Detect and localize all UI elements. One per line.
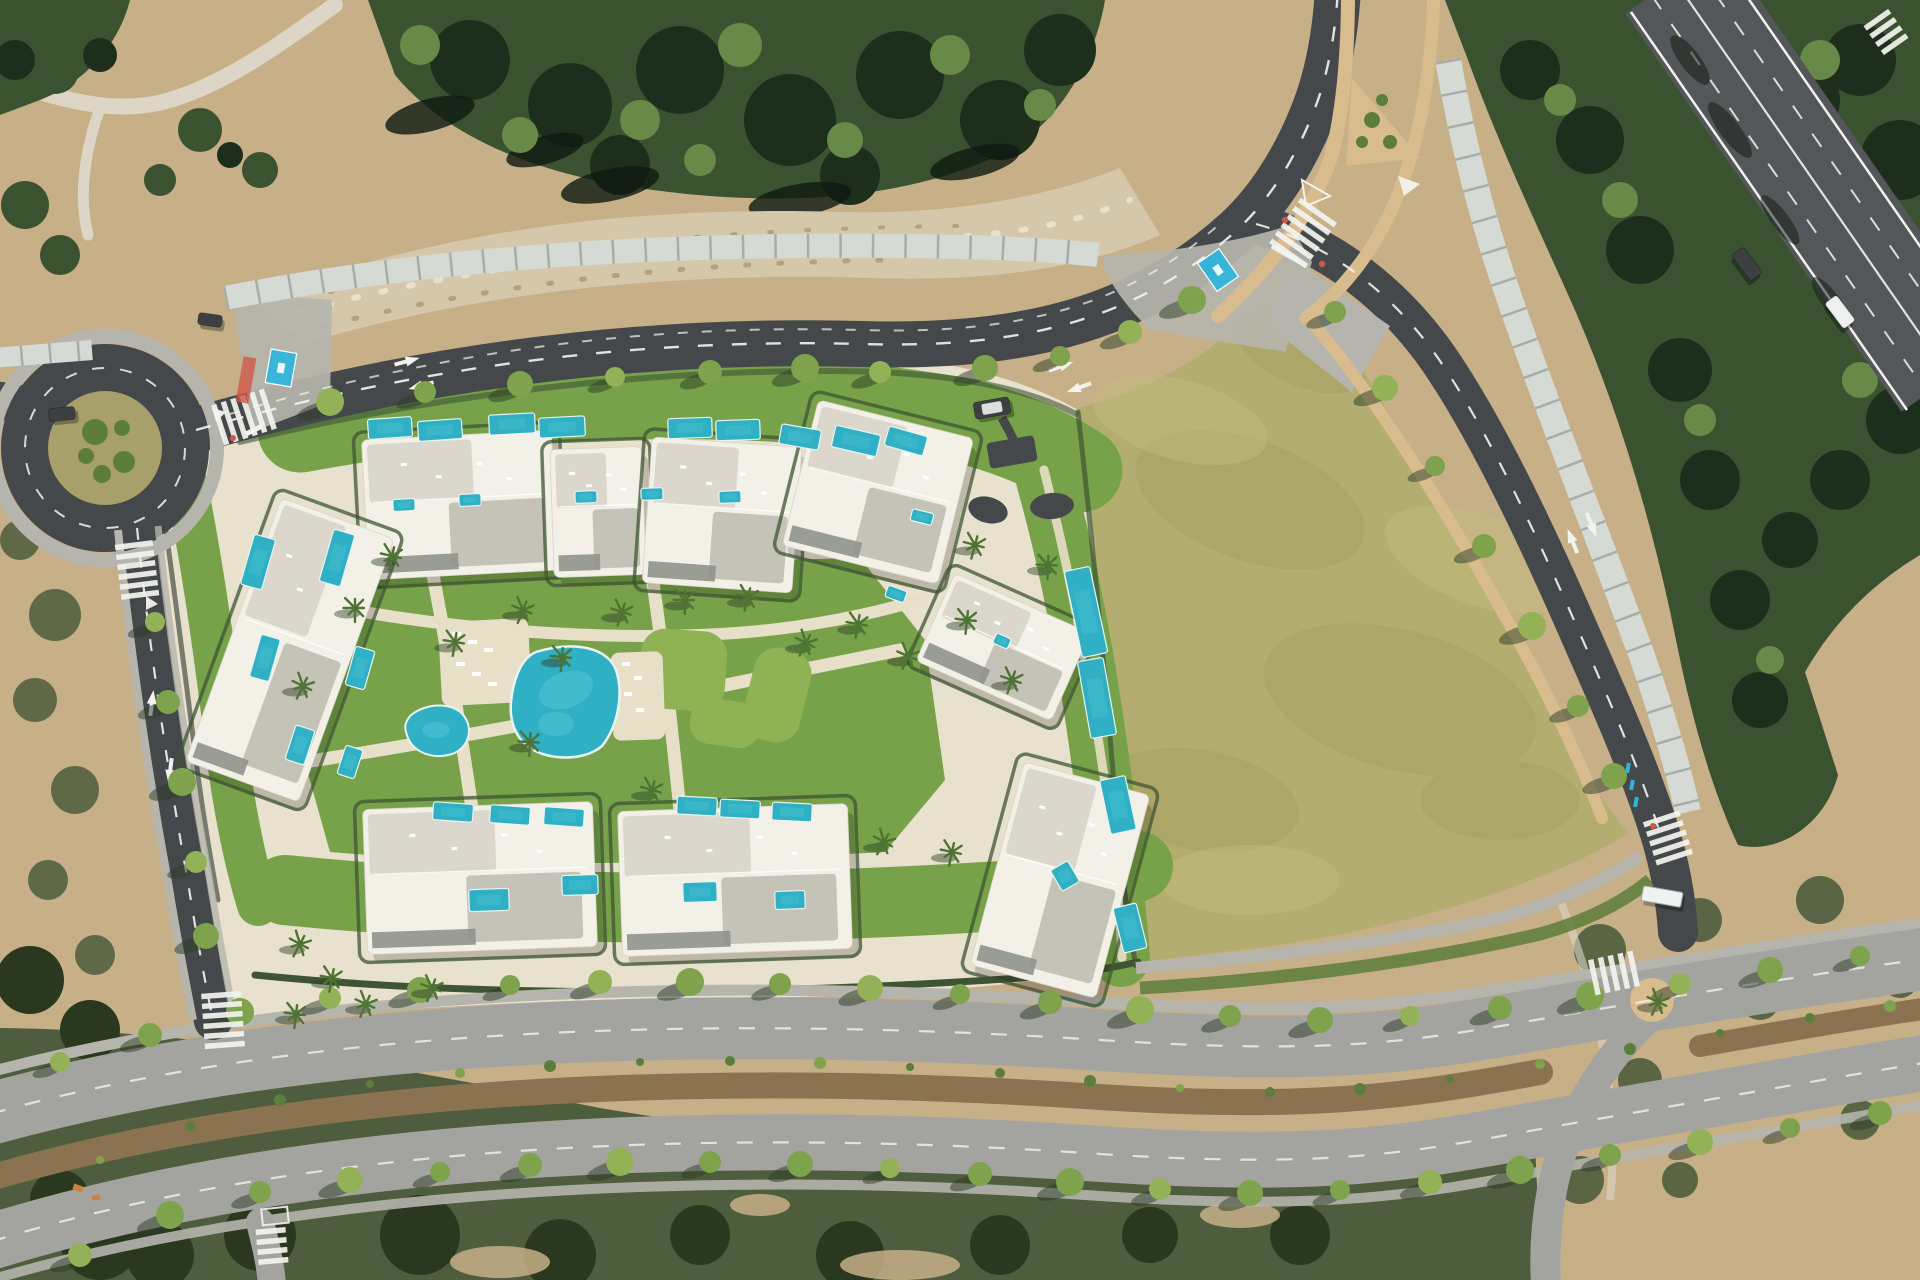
- scrub-bottom-part-part: [970, 1215, 1030, 1275]
- street-tree: [1372, 375, 1398, 401]
- street-tree: [337, 1167, 363, 1193]
- sun-loungers-part: [636, 708, 644, 712]
- private-pool-part: [677, 423, 704, 434]
- sun-loungers-part: [456, 662, 465, 666]
- private-pool: [668, 417, 713, 439]
- private-pool-part: [725, 425, 752, 436]
- median-shrub: [1176, 1084, 1184, 1092]
- terrace-furniture: [620, 488, 626, 491]
- junction-island-shrubs-part: [1376, 94, 1388, 106]
- street-tree: [606, 1148, 634, 1176]
- street-tree: [1050, 346, 1070, 366]
- forest-top-highlights-part: [620, 100, 660, 140]
- terrace-furniture: [606, 473, 612, 476]
- forest-topleft-part: [242, 152, 278, 188]
- terrace-furniture: [680, 465, 686, 468]
- street-tree: [1056, 1168, 1084, 1196]
- street-tree: [156, 690, 180, 714]
- private-pool: [716, 419, 761, 441]
- terrace-furniture: [401, 463, 407, 466]
- forest-right-highlights-part: [1684, 404, 1716, 436]
- private-pool-part: [685, 801, 709, 811]
- street-tree: [1757, 957, 1783, 983]
- terrace-furniture: [664, 836, 670, 839]
- roundabout-island-shrubs-part: [93, 465, 111, 483]
- forest-right-texture-part: [1762, 512, 1818, 568]
- palm-crown: [298, 942, 303, 947]
- sun-loungers-part: [472, 672, 481, 676]
- scrub-west-part: [28, 860, 68, 900]
- median-shrub: [1535, 1059, 1545, 1069]
- street-tree: [1599, 1144, 1621, 1166]
- communal-pools-part-part: [422, 722, 450, 738]
- street-tree: [968, 1162, 992, 1186]
- private-pool-part: [569, 880, 591, 891]
- street-tree: [972, 355, 998, 381]
- street-tree: [1576, 982, 1604, 1010]
- median-shrub: [455, 1068, 465, 1078]
- median-shrub: [814, 1057, 826, 1069]
- private-pool: [720, 799, 761, 819]
- median-shrub: [366, 1080, 374, 1088]
- palm-crown: [294, 1012, 299, 1017]
- forest-top-highlights-part: [930, 35, 970, 75]
- median-shrub: [1354, 1083, 1366, 1095]
- palm-crown: [528, 740, 533, 745]
- palm-crown: [353, 606, 358, 611]
- median-shrub: [1805, 1013, 1815, 1023]
- street-tree: [1506, 1156, 1534, 1184]
- dirt-bottom-right-part-part: [1796, 876, 1844, 924]
- street-tree: [430, 1162, 450, 1182]
- terrace-furniture: [409, 834, 415, 837]
- block-south-2: [609, 795, 861, 965]
- signal-dots-part: [1319, 261, 1325, 267]
- street-tree: [1850, 946, 1870, 966]
- street-tree: [1687, 1129, 1713, 1155]
- street-tree: [1219, 1005, 1241, 1027]
- private-pool: [539, 416, 586, 438]
- forest-top-texture-dark-part: [744, 74, 836, 166]
- roof-terrace: [367, 439, 474, 503]
- scrub-west-part: [51, 766, 99, 814]
- forest-right-texture-part: [1648, 338, 1712, 402]
- junction-island-shrubs-part: [1383, 135, 1397, 149]
- private-pool: [489, 805, 530, 826]
- terrace-furniture: [756, 836, 762, 839]
- roof-slab: [448, 498, 546, 567]
- street-tree: [698, 360, 722, 384]
- terrace-furniture: [477, 462, 483, 465]
- street-tree: [168, 768, 196, 796]
- terrace-furniture: [506, 477, 512, 480]
- private-pool: [562, 874, 599, 895]
- scrub-bottom-part-part: [670, 1205, 730, 1265]
- roundabout-island-shrubs-part: [113, 451, 135, 473]
- street-tree: [1330, 1180, 1350, 1200]
- roundabout-island-shrubs-part: [82, 419, 108, 445]
- street-tree: [50, 1052, 70, 1072]
- street-tree: [1669, 973, 1691, 995]
- vacant-field-part-part: [1420, 760, 1580, 840]
- roof-dark-section: [558, 554, 600, 571]
- palm-crown: [906, 654, 911, 659]
- communal-pools-part-part: [538, 712, 574, 736]
- street-tree: [500, 975, 520, 995]
- street-tree: [605, 367, 625, 387]
- scrub-bottom-part-part: [450, 1246, 550, 1278]
- street-tree: [1518, 612, 1546, 640]
- forest-right-texture-part: [1810, 450, 1870, 510]
- forest-right-texture-part: [1732, 672, 1788, 728]
- roundabout: [0, 336, 217, 560]
- street-tree: [676, 968, 704, 996]
- terrace-furniture: [706, 849, 712, 852]
- palm-crown: [746, 595, 751, 600]
- forest-right-highlights-part: [1602, 182, 1638, 218]
- palm-crown: [856, 622, 861, 627]
- palm-crown: [521, 608, 526, 613]
- street-tree: [145, 612, 165, 632]
- handicap-parking-west: [265, 349, 297, 387]
- private-pool-part: [441, 807, 466, 818]
- median-shrub: [1884, 1000, 1896, 1012]
- forest-top-texture-dark-part: [430, 20, 510, 100]
- street-tree: [185, 851, 207, 873]
- median-shrub: [995, 1068, 1005, 1078]
- street-tree: [787, 1151, 813, 1177]
- roundabout-island-shrubs-part: [114, 420, 130, 436]
- terrace-furniture: [792, 852, 798, 855]
- private-pool: [641, 488, 663, 501]
- forest-right-texture-part: [1556, 106, 1624, 174]
- private-pool-part: [426, 424, 453, 436]
- private-pool-part: [498, 418, 526, 429]
- forest-top-highlights-part: [1024, 89, 1056, 121]
- median-shrub: [544, 1060, 556, 1072]
- street-tree: [1601, 763, 1627, 789]
- palm-crown: [430, 986, 435, 991]
- terrace-furniture: [537, 850, 543, 853]
- palm-crown: [882, 840, 887, 845]
- sun-loungers-part: [484, 648, 493, 652]
- private-pool-part: [645, 491, 658, 497]
- scrub-bottom-part-part: [840, 1250, 960, 1280]
- palm-crown: [301, 684, 306, 689]
- street-tree: [880, 1158, 900, 1178]
- scrub-bottom-part-part: [730, 1194, 790, 1216]
- palm-crown: [804, 641, 809, 646]
- roof-terrace: [623, 812, 752, 877]
- forest-topleft-part: [40, 235, 80, 275]
- signal-dots-part: [1650, 823, 1656, 829]
- private-pool-part: [463, 497, 476, 504]
- street-tree: [857, 975, 883, 1001]
- street-tree: [1118, 320, 1142, 344]
- terrace-furniture: [451, 847, 457, 850]
- private-pool: [677, 796, 718, 816]
- sun-loungers-part: [468, 640, 477, 644]
- street-tree: [1868, 1101, 1892, 1125]
- private-pool: [543, 807, 584, 828]
- private-pool-part: [723, 494, 736, 500]
- palm-crown: [364, 1002, 369, 1007]
- median-shrub: [1446, 1075, 1454, 1083]
- car-roof: [54, 409, 69, 419]
- sun-loungers-part: [624, 692, 632, 696]
- private-pool: [432, 802, 473, 823]
- palm-crown: [560, 655, 565, 660]
- terrace-furniture: [436, 475, 442, 478]
- terrace-furniture: [740, 472, 746, 475]
- street-tree: [414, 381, 436, 403]
- private-pool-part: [781, 895, 799, 905]
- street-tree: [156, 1201, 184, 1229]
- terrace-furniture: [501, 834, 507, 837]
- palm-crown: [683, 598, 688, 603]
- street-tree: [249, 1181, 271, 1203]
- median-shrub: [636, 1058, 644, 1066]
- street-tree: [1425, 456, 1445, 476]
- street-tree: [1418, 1170, 1442, 1194]
- street-tree: [68, 1243, 92, 1267]
- sun-loungers-part: [634, 676, 642, 680]
- street-tree: [699, 1151, 721, 1173]
- signal-dots-part: [1282, 217, 1288, 223]
- terrace-furniture: [569, 472, 575, 475]
- median-shrub: [274, 1094, 286, 1106]
- palm-crown: [1656, 1000, 1661, 1005]
- scrub-west-part: [75, 935, 115, 975]
- palm-crown: [330, 976, 335, 981]
- aerial-site-view: [0, 0, 1920, 1280]
- median-shrub: [1084, 1075, 1096, 1087]
- block-north-3: [633, 428, 810, 602]
- street-tree: [1307, 1007, 1333, 1033]
- private-pool: [469, 888, 510, 911]
- street-tree: [1149, 1178, 1171, 1200]
- terrace-furniture: [586, 484, 592, 487]
- private-pool: [417, 418, 462, 441]
- median-shrub: [96, 1156, 104, 1164]
- private-pool: [775, 890, 806, 909]
- private-pool: [575, 491, 597, 504]
- private-pool-part: [690, 887, 711, 898]
- forest-right-highlights-part: [1544, 84, 1576, 116]
- palm-crown: [973, 543, 978, 548]
- street-tree: [1178, 286, 1206, 314]
- vacant-field-part-part: [1160, 845, 1340, 915]
- forest-top-highlights-part: [718, 23, 762, 67]
- forest-topleft-shade-part: [83, 38, 117, 72]
- roof-terrace: [368, 810, 497, 875]
- street-tree: [518, 1153, 542, 1177]
- palm-crown: [1010, 678, 1015, 683]
- private-pool: [367, 416, 412, 439]
- sun-loungers-part: [488, 682, 497, 686]
- private-pool: [459, 493, 482, 506]
- forest-top-texture-dark-part: [856, 31, 944, 119]
- junction-island-shrubs-part: [1364, 112, 1380, 128]
- palm-crown: [965, 618, 970, 623]
- median-shrub: [725, 1056, 735, 1066]
- private-pool-part: [552, 812, 577, 823]
- terrace-furniture: [761, 491, 767, 494]
- palm-crown: [620, 610, 625, 615]
- private-pool-part: [397, 502, 410, 509]
- roundabout-island-shrubs-part: [78, 448, 94, 464]
- car-west-arm: [48, 406, 79, 426]
- junction-island-shrubs-part: [1356, 136, 1368, 148]
- forest-topleft-part: [144, 164, 176, 196]
- forest-right-highlights-part: [1756, 646, 1784, 674]
- private-pool-part: [477, 894, 501, 906]
- street-tree: [869, 361, 891, 383]
- street-tree: [507, 371, 533, 397]
- street-tree: [1472, 534, 1496, 558]
- private-pool-part: [728, 804, 752, 814]
- private-pool-part: [579, 494, 592, 500]
- street-tree: [1324, 301, 1346, 323]
- street-tree: [1780, 1118, 1800, 1138]
- street-tree: [193, 923, 219, 949]
- street-tree: [1488, 996, 1512, 1020]
- private-pool: [719, 491, 741, 504]
- terrace-furniture: [706, 482, 712, 485]
- forest-topleft-part: [178, 108, 222, 152]
- forest-top-highlights-part: [684, 144, 716, 176]
- forest-topleft-shade-part: [217, 142, 243, 168]
- forest-right-texture-part: [1680, 450, 1740, 510]
- forest-top-highlights-part: [400, 25, 440, 65]
- private-pool-part: [780, 807, 804, 817]
- street-tree: [1567, 695, 1589, 717]
- private-pool-part: [548, 421, 576, 432]
- aerial-render: [0, 0, 1920, 1280]
- dirt-bottom-right-part-part: [1662, 1162, 1698, 1198]
- median-shrub: [1265, 1087, 1275, 1097]
- palm-crown: [1046, 563, 1051, 568]
- private-pool-part: [498, 810, 523, 821]
- street-tree: [1038, 990, 1062, 1014]
- palm-crown: [950, 850, 955, 855]
- forest-top-texture-dark-part: [1024, 14, 1096, 86]
- street-tree: [950, 984, 970, 1004]
- private-pool: [393, 498, 416, 511]
- street-tree: [1237, 1180, 1263, 1206]
- private-pool-part: [376, 422, 403, 434]
- median-shrub: [906, 1063, 914, 1071]
- palm-crown: [390, 554, 395, 559]
- forest-topleft-part: [31, 46, 79, 94]
- forest-top-texture-dark-part: [636, 26, 724, 114]
- median-shrub: [1716, 1029, 1724, 1037]
- sun-loungers-part: [622, 662, 630, 666]
- signal-dots-part: [230, 435, 236, 441]
- median-shrub: [1624, 1043, 1636, 1055]
- scrub-west-part: [29, 589, 81, 641]
- street-tree: [316, 388, 344, 416]
- street-tree: [588, 970, 612, 994]
- scrub-west-part: [13, 678, 57, 722]
- palm-crown: [453, 640, 458, 645]
- forest-top-highlights-part: [827, 122, 863, 158]
- forest-right-texture-part: [1606, 216, 1674, 284]
- private-pool: [772, 802, 813, 822]
- forest-top-highlights-part: [502, 117, 538, 153]
- private-pool: [489, 413, 536, 435]
- median-shrub: [185, 1121, 195, 1131]
- scrub-bottom-part-part: [1122, 1207, 1178, 1263]
- palm-crown: [650, 788, 655, 793]
- street-tree: [1126, 996, 1154, 1024]
- street-tree: [138, 1023, 162, 1047]
- forest-right-texture-part: [1710, 570, 1770, 630]
- street-tree: [1400, 1006, 1420, 1026]
- street-tree: [791, 354, 819, 382]
- street-tree: [769, 973, 791, 995]
- private-pool: [683, 881, 718, 902]
- forest-topleft-part: [1, 181, 49, 229]
